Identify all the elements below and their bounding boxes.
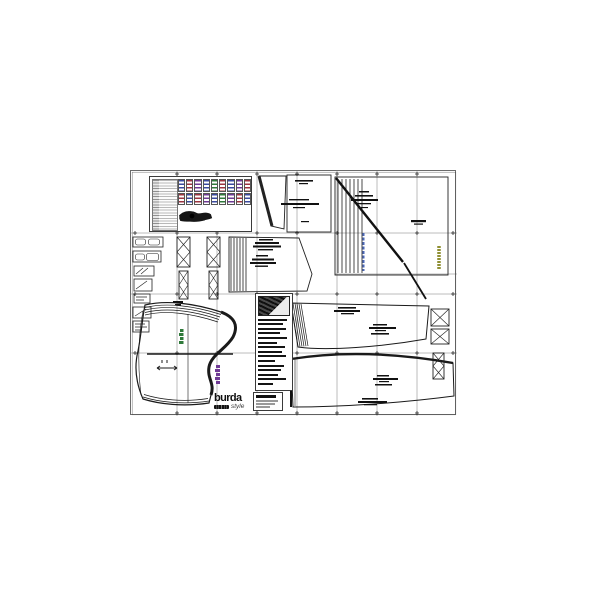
redacted-text-line — [256, 400, 278, 402]
miniature-piece — [203, 193, 210, 206]
sheet-label-box — [253, 392, 283, 411]
pleat-lines — [231, 238, 246, 291]
redacted-text-line — [256, 406, 270, 408]
text-marking-cluster — [358, 375, 398, 405]
miniature-piece — [178, 193, 185, 206]
miniature-piece — [186, 179, 193, 192]
hatch-band — [291, 303, 308, 347]
brand-name: burda — [214, 393, 252, 403]
pattern-piece-top-panel — [281, 175, 331, 232]
redacted-text-line — [258, 319, 287, 321]
pattern-piece-leg-upper — [291, 303, 429, 349]
miniature-piece — [186, 193, 193, 206]
redacted-text-line — [258, 378, 286, 380]
waistband-lines — [145, 305, 221, 322]
redacted-text-line — [258, 365, 284, 367]
miniature-piece — [244, 193, 251, 206]
garment-sketches — [177, 207, 252, 231]
miniature-piece — [236, 193, 243, 206]
miniature-piece — [244, 179, 251, 192]
miniature-piece — [236, 179, 243, 192]
redacted-text-line — [258, 337, 287, 339]
hatched-strips — [177, 237, 220, 299]
redacted-text-line — [258, 383, 273, 385]
brand-logo-bar — [214, 405, 229, 409]
miniature-piece — [211, 179, 218, 192]
miniature-piece — [219, 193, 226, 206]
redacted-text-line — [258, 351, 282, 353]
redacted-text-line — [258, 369, 281, 371]
miniature-piece — [178, 179, 185, 192]
redacted-text-line — [258, 360, 275, 362]
green-size-marks — [179, 329, 184, 344]
size-table-header-column — [153, 180, 159, 230]
instruction-photo — [258, 296, 290, 316]
redacted-text-line — [258, 332, 280, 334]
legend-panel — [255, 293, 293, 391]
grainline-arrow — [157, 360, 177, 370]
pattern-sheet: burda style — [130, 170, 456, 415]
redacted-text-line — [256, 403, 275, 405]
garment-sketch — [177, 206, 210, 225]
purple-size-marks — [215, 365, 220, 384]
scan-background: burda style — [0, 0, 600, 600]
redacted-text-line — [258, 328, 286, 330]
pattern-piece-center-pleated — [229, 237, 312, 292]
small-parts-column — [133, 237, 163, 332]
waist-curve-band — [291, 354, 453, 363]
miniature-layout-grid — [178, 179, 251, 205]
redacted-text-line — [258, 342, 277, 344]
redacted-text-line — [256, 395, 276, 398]
text-marking-cluster — [250, 239, 281, 267]
redacted-text-line — [258, 355, 286, 357]
miniature-piece — [227, 179, 234, 192]
redacted-text-line — [258, 346, 285, 348]
brand-logo: burda style — [214, 393, 252, 412]
miniature-piece — [219, 179, 226, 192]
edge-small-pieces — [431, 309, 449, 379]
pleat-lines — [338, 179, 362, 273]
miniature-piece — [194, 193, 201, 206]
redacted-text-line — [258, 374, 278, 376]
text-marking-cluster — [334, 307, 396, 335]
pattern-piece-top-facing — [259, 176, 286, 229]
redacted-text-line — [258, 323, 283, 325]
miniature-piece — [194, 179, 201, 192]
miniature-piece — [203, 179, 210, 192]
miniature-piece — [227, 193, 234, 206]
overview-panel — [149, 176, 252, 232]
brand-sub: style — [231, 404, 244, 410]
size-table — [152, 179, 178, 231]
pattern-piece-striped-diagonal — [335, 177, 448, 299]
pattern-piece-leg-lower — [290, 354, 454, 407]
miniature-piece — [211, 193, 218, 206]
